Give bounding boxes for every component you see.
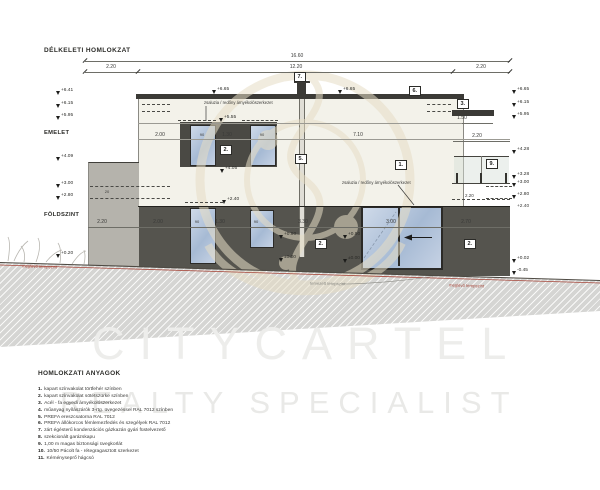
level-marker: +2.80 [56, 193, 73, 200]
material-item: 2.kapart színvakolat sötétszürke színben [38, 394, 128, 399]
level-marker: -0.45 [512, 268, 528, 275]
callout-2: 2. [220, 145, 232, 155]
level-marker: +5.95 [512, 112, 529, 119]
level-marker: +2.80 [512, 192, 529, 199]
floor-label-ground: FÖLDSZINT [44, 212, 79, 218]
upper-dim-line [138, 139, 510, 140]
material-item: 8.szekcionált garázskapu [38, 435, 95, 440]
lintel-dash [178, 120, 216, 121]
level-marker: +3.00 [512, 180, 529, 187]
dim-up-right: 7.10 [353, 133, 363, 139]
terrain-planned-label: tervezett terepszint [310, 281, 345, 287]
callout-2: 2. [464, 239, 476, 249]
gf-dim: 2.70 [461, 220, 471, 226]
dim-total: 16.60 [291, 54, 304, 60]
material-item: 4.műanyag nyílászárók 3-rtg. üvegezéssel… [38, 408, 173, 413]
callout-5: 5. [295, 154, 307, 164]
level-marker: +2.40 [517, 204, 529, 209]
material-item: 9.1,00 m magas biztonsági üvegkorlát [38, 442, 122, 447]
terrace-dash [452, 199, 510, 200]
wall-dash [90, 198, 170, 199]
slide-direction-arrow [404, 235, 432, 241]
material-item: 6.PREFA állókorcos fémlemezfedés és szeg… [38, 421, 170, 426]
shading-note-upper: zsaluzia / redőny árnyékolószerkezet [204, 100, 273, 105]
dim-terrace: 2.20 [472, 134, 482, 140]
material-item: 1.kapart színvakolat törtfehér színben [38, 387, 122, 392]
slab-top-line [138, 206, 510, 207]
level-marker: ±0.00 [279, 255, 296, 262]
level-marker: +0.02 [512, 256, 529, 263]
dim-bar-length: 1.50 [457, 116, 467, 122]
level-marker: +0.90 [343, 232, 360, 239]
floor-label-upper: EMELET [44, 130, 69, 136]
callout-6: 6. [409, 86, 421, 96]
lintel-dash [242, 120, 278, 121]
callout-2: 2. [315, 239, 327, 249]
dim-win-b: 90 [260, 133, 264, 137]
material-item: 3.Acél - fa egyedi árnyékolószerkezet [38, 401, 121, 406]
level-marker: +6.65 [212, 87, 229, 94]
elevation-drawing: CITYCARTEL REALTY SPECIALIST DÉLKELETI H… [0, 0, 600, 490]
level-marker: +3.00 [56, 181, 73, 188]
level-marker: +0.90 [279, 232, 296, 239]
gf-dim: 2.00 [153, 220, 163, 226]
insulation-dash [142, 111, 170, 112]
level-marker: +0.20 [56, 251, 73, 258]
dim-side-left: 2.20 [106, 65, 116, 71]
level-marker: +6.41 [56, 88, 73, 95]
dim-win-gap: 1.30 [222, 133, 232, 139]
gf-dim-line [88, 227, 510, 228]
bushes-sketch [8, 237, 86, 264]
material-item: 7.zárt égésterű kondenzációs gázkazán gy… [38, 428, 166, 433]
insulation-dash [142, 104, 170, 105]
gf-dim: 3.30 [298, 220, 308, 226]
slab-dash [185, 202, 223, 203]
level-marker: +5.95 [56, 113, 73, 120]
terrace-slab-line [452, 183, 510, 184]
level-marker: +2.40 [222, 197, 239, 204]
material-item: 5.PREFA ereszcsatorna RAL 7012 [38, 415, 115, 420]
callout-9: 9. [486, 159, 498, 169]
terrain-existing-label: meglévő terepszint [22, 264, 57, 270]
callout-1: 1. [395, 160, 407, 170]
dim-wall-thickness: 20 [105, 190, 109, 194]
level-marker: +3.28 [512, 172, 529, 179]
material-item: 11.Kéményseprő hágcsó [38, 456, 94, 461]
gf-dim: 90 [195, 220, 199, 224]
dim-up-left: 2.00 [155, 133, 165, 139]
level-marker: +6.15 [56, 101, 73, 108]
insulation-dash [427, 111, 451, 112]
level-marker: +5.55 [219, 115, 236, 122]
level-marker: +4.05 [220, 166, 237, 173]
dim-side-right: 2.20 [476, 65, 486, 71]
callout-3: 3. [457, 99, 469, 109]
lintel-line [138, 123, 462, 124]
materials-title: HOMLOKZATI ANYAGOK [38, 370, 120, 377]
shading-note-right: zsaluzia / redőny árnyékolószerkezet [342, 180, 411, 185]
level-marker: ±0.00 [343, 256, 360, 263]
gf-dim: 90 [254, 220, 258, 224]
terrain-existing-label: meglévő terepszint [449, 283, 484, 289]
dim-mid: 12.20 [290, 65, 303, 71]
terrace-dash [486, 186, 512, 187]
gf-dim: 3.00 [386, 220, 396, 226]
wall-dash [90, 186, 170, 187]
dim-terrace-low: 2.20 [464, 194, 475, 199]
callout-7: 7. [294, 72, 306, 82]
dim-line-terrace [453, 141, 510, 142]
level-marker: +4.28 [512, 147, 529, 154]
dim-line-total [85, 61, 510, 62]
gf-dim: 1.30 [215, 220, 225, 226]
drawing-title: DÉLKELETI HOMLOKZAT [44, 47, 131, 54]
level-marker: +6.65 [512, 87, 529, 94]
level-marker: +6.65 [338, 87, 355, 94]
material-item: 10.10/50 Pácolt fa - rétegragasztott sze… [38, 449, 139, 454]
level-marker: +6.15 [512, 100, 529, 107]
level-marker: +4.09 [56, 154, 73, 161]
gf-dim: 2.20 [97, 220, 107, 226]
dim-win-a: 90 [200, 133, 204, 137]
insulation-dash [427, 104, 451, 105]
